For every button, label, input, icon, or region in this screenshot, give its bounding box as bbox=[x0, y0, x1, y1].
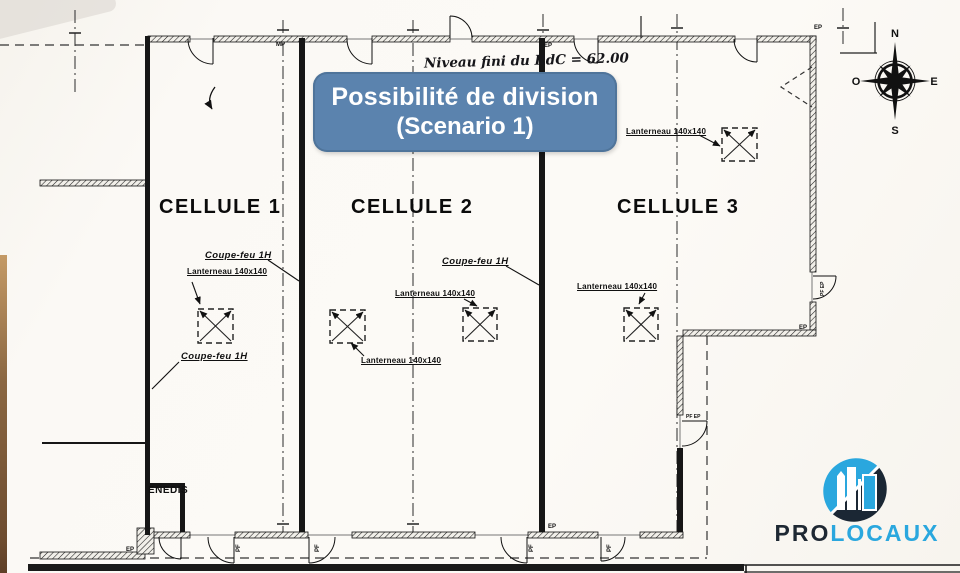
tag-ep: EP bbox=[799, 325, 807, 331]
skylight-symbol bbox=[198, 309, 233, 343]
skylight-symbol bbox=[624, 308, 658, 341]
prolocaux-wordmark: PROLOCAUX bbox=[762, 520, 952, 547]
logo-text-locaux: LOCAUX bbox=[830, 520, 939, 546]
prolocaux-logo-mark bbox=[823, 458, 886, 521]
cell-label-3: CELLULE 3 bbox=[617, 196, 739, 219]
tag-ep: EP bbox=[544, 43, 552, 49]
skylight-label: Lanterneau 140x140 bbox=[361, 356, 441, 365]
skylight-label: Lanterneau 140x140 bbox=[577, 282, 657, 291]
fire-rating-label: Coupe-feu 1H bbox=[205, 250, 272, 261]
tag-pf: PF bbox=[529, 544, 535, 552]
banner-line1: Possibilité de division bbox=[331, 82, 598, 112]
logo-text-pro: PRO bbox=[775, 520, 831, 546]
division-banner: Possibilité de division (Scenario 1) bbox=[313, 72, 617, 152]
misc-lines bbox=[641, 16, 877, 53]
floor-plan-photo: N E S O Niveau fini du RdC = 62.00 bbox=[0, 0, 960, 573]
skylight-label: Lanterneau 140x140 bbox=[395, 289, 475, 298]
tag-pf: PF bbox=[315, 544, 321, 552]
tag-ep: EP bbox=[548, 524, 556, 530]
cell-label-1: CELLULE 1 bbox=[159, 196, 281, 219]
compass-north-label: N bbox=[891, 28, 899, 40]
sectional-door-dashed bbox=[781, 67, 812, 107]
skylight-symbols bbox=[198, 128, 757, 343]
tag-pf-ep: PF EP bbox=[820, 282, 826, 296]
enedis-room-label: ENEDIS bbox=[148, 485, 188, 496]
skylight-label: Lanterneau 140x140 bbox=[626, 127, 706, 136]
compass-rose: N E S O bbox=[852, 28, 938, 137]
fire-rating-label: Coupe-feu 1H bbox=[442, 256, 509, 267]
cell-label-2: CELLULE 2 bbox=[351, 196, 473, 219]
tag-ep: EP bbox=[814, 25, 822, 31]
tag-pf: PF bbox=[607, 544, 613, 552]
tag-mp: MP bbox=[276, 42, 285, 48]
skylight-symbol bbox=[330, 310, 365, 343]
sheet-border bbox=[28, 564, 960, 573]
tag-pf: PF bbox=[236, 544, 242, 552]
skylight-label: Lanterneau 140x140 bbox=[187, 267, 267, 276]
compass-south-label: S bbox=[891, 125, 898, 137]
skylight-symbol bbox=[722, 128, 757, 161]
skylight-symbol bbox=[463, 308, 497, 341]
compass-west-label: O bbox=[852, 76, 861, 88]
tag-pf-ep: PF EP bbox=[686, 414, 700, 420]
tag-ep: EP bbox=[126, 547, 134, 553]
banner-line2: (Scenario 1) bbox=[396, 112, 533, 142]
fire-rating-label: Coupe-feu 1H bbox=[181, 351, 248, 362]
compass-east-label: E bbox=[930, 76, 937, 88]
curved-arrow bbox=[210, 87, 215, 109]
